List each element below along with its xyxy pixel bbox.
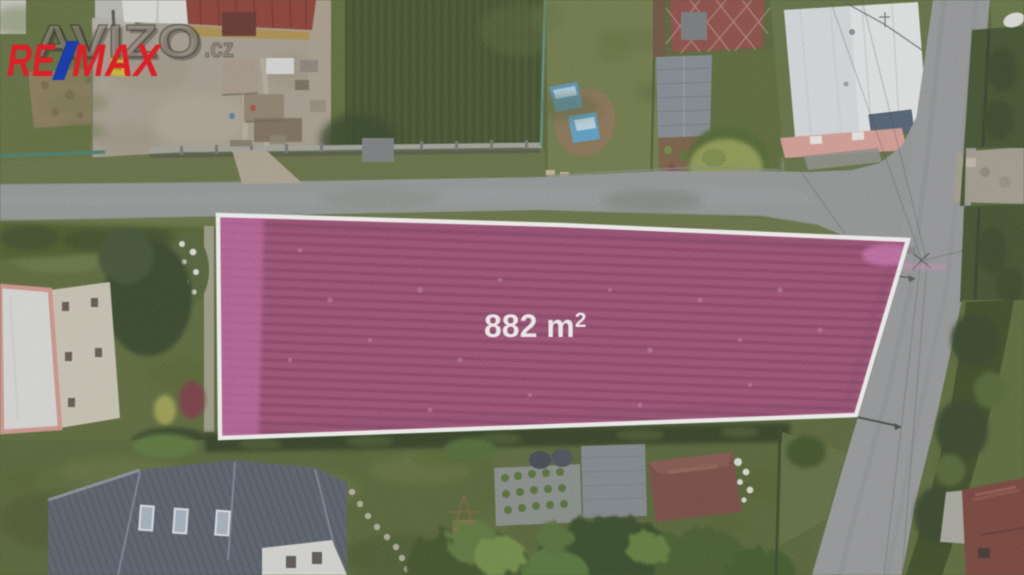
svg-text:MAX: MAX [72,35,163,86]
svg-text:RE: RE [7,35,57,86]
svg-text:.cz: .cz [204,33,234,63]
